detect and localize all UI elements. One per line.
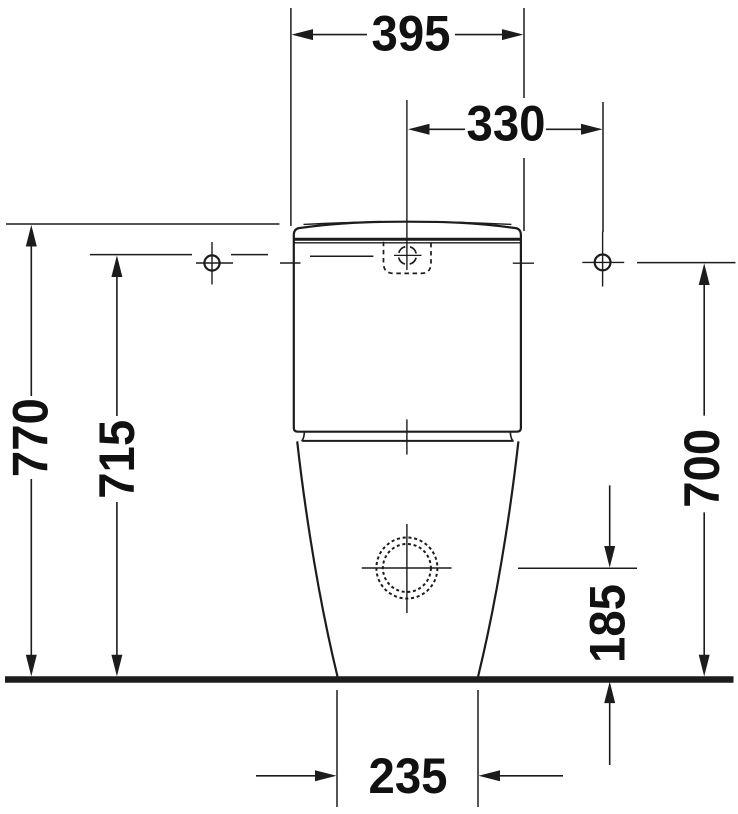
svg-text:700: 700 bbox=[674, 429, 730, 508]
svg-text:235: 235 bbox=[369, 748, 448, 804]
svg-text:185: 185 bbox=[580, 584, 636, 663]
svg-text:330: 330 bbox=[467, 95, 546, 151]
svg-text:395: 395 bbox=[372, 6, 451, 62]
svg-text:715: 715 bbox=[89, 420, 145, 499]
svg-text:770: 770 bbox=[2, 398, 58, 477]
